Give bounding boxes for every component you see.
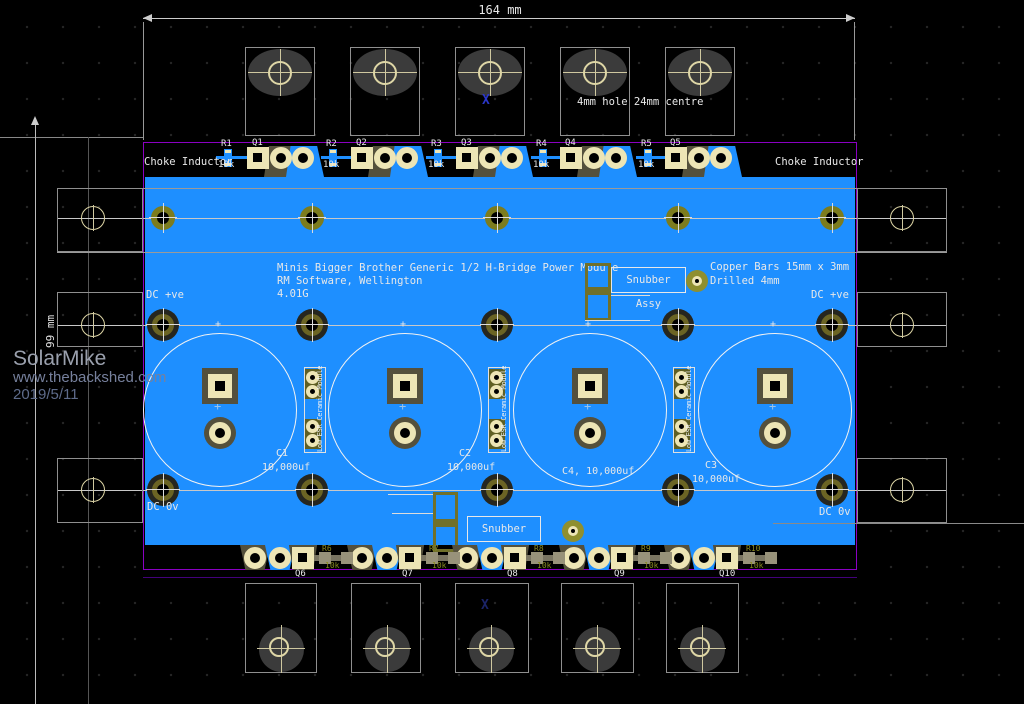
- resistor-value: 10k: [537, 561, 551, 570]
- snubber-label-box[interactable]: Snubber Assy: [611, 267, 686, 293]
- dim-arrow-up-icon: [31, 116, 39, 125]
- resistor-ref: R6: [322, 544, 332, 553]
- trace: [531, 156, 539, 159]
- dim-height-line: [35, 118, 36, 704]
- pad-hole: [462, 153, 471, 162]
- dim-ext-line: [143, 22, 144, 140]
- drill-cross-v: [93, 205, 94, 231]
- transistor-pad-square[interactable]: [247, 147, 269, 169]
- dim-ext-line: [854, 22, 855, 140]
- board-outline-offset: [143, 577, 857, 578]
- resistor-value: 10k: [323, 160, 339, 170]
- transistor-pad-round[interactable]: [583, 147, 605, 169]
- esr-module-label: Low ESR Ceramic Module: [500, 366, 508, 452]
- drill-circle[interactable]: [583, 61, 607, 85]
- capacitor-value: 10,000uf: [692, 474, 740, 485]
- capacitor-value-text: 10,000uf: [586, 466, 634, 477]
- x-marker: X: [481, 598, 489, 613]
- esr-module-label: Low ESR Ceramic Module: [316, 366, 324, 452]
- dc-positive-label-left: DC +ve: [146, 289, 184, 301]
- leader-line: [388, 494, 434, 495]
- pad-crosshair: [832, 473, 833, 507]
- pad-hole: [400, 381, 410, 391]
- transistor-pad-round[interactable]: [396, 147, 418, 169]
- esr-module-label: Low ESR Ceramic Module: [685, 366, 693, 452]
- watermark-name: SolarMike: [13, 347, 106, 371]
- transistor-pad-square[interactable]: [665, 147, 687, 169]
- capacitor-pad-round[interactable]: [394, 422, 416, 444]
- pad-hole: [585, 381, 595, 391]
- transistor-ref: Q4: [565, 138, 576, 148]
- trace: [442, 156, 457, 159]
- transistor-pad-round[interactable]: [292, 147, 314, 169]
- resistor-pad[interactable]: [660, 552, 672, 564]
- resistor-pad[interactable]: [448, 552, 460, 564]
- pad-crosshair: [163, 203, 164, 233]
- trace: [337, 156, 352, 159]
- board-version: 4.01G: [277, 288, 309, 300]
- pad-hole: [357, 153, 366, 162]
- resistor-pad[interactable]: [341, 552, 353, 564]
- transistor-ref: Q9: [614, 569, 625, 579]
- trace: [232, 156, 247, 159]
- resistor-value: 10k: [638, 160, 654, 170]
- pad-crosshair: [678, 473, 679, 507]
- transistor-ref: Q2: [356, 138, 367, 148]
- pad-hole: [215, 381, 225, 391]
- resistor-pad: [330, 150, 336, 153]
- transistor-pad-square[interactable]: [560, 147, 582, 169]
- resistor-pad: [225, 150, 231, 153]
- resistor-ref: R3: [431, 139, 442, 149]
- drill-circle[interactable]: [373, 61, 397, 85]
- snubber-component-bar: [588, 287, 608, 295]
- trace: [636, 156, 644, 159]
- drill-circle[interactable]: [269, 637, 289, 657]
- pad-crosshair: [312, 203, 313, 233]
- dim-arrow-right-icon: [846, 14, 855, 22]
- resistor-value: 10k: [533, 160, 549, 170]
- resistor-ref: R7: [429, 544, 439, 553]
- drill-circle[interactable]: [479, 637, 499, 657]
- dc-positive-label-right: DC +ve: [811, 289, 849, 301]
- transistor-pad-square[interactable]: [716, 547, 738, 569]
- drill-cross-v: [902, 205, 903, 231]
- leader-line: [611, 295, 650, 296]
- pad-hole: [405, 553, 414, 562]
- transistor-pad-square[interactable]: [504, 547, 526, 569]
- copper-bar-edge: [57, 252, 947, 253]
- transistor-pad-round[interactable]: [376, 547, 398, 569]
- watermark-date: 2019/5/11: [13, 386, 79, 403]
- leader-line: [392, 513, 434, 514]
- drill-circle[interactable]: [585, 637, 605, 657]
- pad-crosshair: [678, 308, 679, 342]
- transistor-ref: Q5: [670, 138, 681, 148]
- x-marker: X: [482, 93, 490, 108]
- transistor-pad-round[interactable]: [501, 147, 523, 169]
- capacitor-ref: C1: [276, 448, 288, 459]
- resistor-ref: R10: [746, 544, 760, 553]
- board-title: Minis Bigger Brother Generic 1/2 H-Bridg…: [277, 262, 618, 274]
- dim-arrow-left-icon: [143, 14, 152, 22]
- resistor-value: 10k: [749, 561, 763, 570]
- resistor-pad[interactable]: [553, 552, 565, 564]
- drill-circle[interactable]: [688, 61, 712, 85]
- dim-width-line: [143, 18, 855, 19]
- choke-inductor-label-right: Choke Inductor: [775, 156, 864, 168]
- capacitor-pad-round[interactable]: [209, 422, 231, 444]
- resistor-ref: R1: [221, 139, 232, 149]
- pad-hole: [695, 279, 699, 283]
- pad-hole: [617, 553, 626, 562]
- pad-hole: [298, 553, 307, 562]
- drill-cross-v: [93, 477, 94, 503]
- pad-hole: [571, 529, 575, 533]
- transistor-pad-round[interactable]: [351, 547, 373, 569]
- resistor-value: 10k: [325, 561, 339, 570]
- drill-circle[interactable]: [375, 637, 395, 657]
- board-subtitle: RM Software, Wellington: [277, 275, 422, 287]
- resistor-value: 10k: [432, 561, 446, 570]
- pad-hole: [770, 381, 780, 391]
- capacitor-pad-round[interactable]: [579, 422, 601, 444]
- resistor-pad: [645, 150, 651, 153]
- capacitor-ref: C4, 10,000uf: [562, 466, 634, 477]
- pad-crosshair: [312, 308, 313, 342]
- transistor-pad-round[interactable]: [481, 547, 503, 569]
- dc-zero-label-right: DC 0v: [819, 506, 851, 518]
- dc-zero-label-left: DC 0v: [147, 501, 179, 513]
- drill-cross-v: [902, 477, 903, 503]
- transistor-pad-square[interactable]: [292, 547, 314, 569]
- transistor-ref: Q7: [402, 569, 413, 579]
- transistor-pad-round[interactable]: [244, 547, 266, 569]
- resistor-ref: R8: [534, 544, 544, 553]
- choke-inductor-label-left: Choke Inductor: [144, 156, 233, 168]
- transistor-pad-round[interactable]: [479, 147, 501, 169]
- resistor-value: 10k: [644, 561, 658, 570]
- transistor-pad-round[interactable]: [374, 147, 396, 169]
- copper-bar-edge: [57, 188, 947, 189]
- drill-cross-v: [902, 312, 903, 338]
- resistor-pad: [540, 150, 546, 153]
- resistor-pad[interactable]: [765, 552, 777, 564]
- leader-line: [585, 320, 650, 321]
- dim-ext-line: [0, 137, 143, 138]
- snubber-component-bar: [436, 519, 455, 527]
- watermark-url: www.thebackshed.com: [13, 369, 166, 386]
- transistor-ref: Q3: [461, 138, 472, 148]
- transistor-pad-round[interactable]: [269, 547, 291, 569]
- resistor-ref: R9: [641, 544, 651, 553]
- transistor-pad-square[interactable]: [611, 547, 633, 569]
- transistor-pad-round[interactable]: [693, 547, 715, 569]
- pad-hole: [671, 153, 680, 162]
- snubber-label-box[interactable]: Snubber Assy: [467, 516, 541, 542]
- copper-bars-note-1: Copper Bars 15mm x 3mm: [710, 261, 849, 273]
- transistor-ref: Q10: [719, 569, 735, 579]
- trace: [321, 156, 329, 159]
- capacitor-value: 10,000uf: [447, 462, 495, 473]
- transistor-pad-square[interactable]: [399, 547, 421, 569]
- capacitor-ref: C3: [705, 460, 717, 471]
- hole-note-label: 4mm hole 24mm centre: [577, 96, 703, 108]
- capacitor-ref-text: C4,: [562, 466, 580, 477]
- pad-hole: [566, 153, 575, 162]
- resistor-pad: [435, 150, 441, 153]
- pad-crosshair: [497, 473, 498, 507]
- copper-bars-note-2: Drilled 4mm: [710, 275, 780, 287]
- dim-height-label[interactable]: 99 mm: [44, 315, 57, 348]
- transistor-ref: Q6: [295, 569, 306, 579]
- drill-circle[interactable]: [690, 637, 710, 657]
- pad-crosshair: [832, 203, 833, 233]
- transistor-pad-round[interactable]: [588, 547, 610, 569]
- transistor-pad-round[interactable]: [710, 147, 732, 169]
- pad-crosshair: [497, 308, 498, 342]
- transistor-ref: Q1: [252, 138, 263, 148]
- drill-circle[interactable]: [478, 61, 502, 85]
- pad-hole: [510, 553, 519, 562]
- pad-crosshair: [678, 203, 679, 233]
- transistor-pad-round[interactable]: [270, 147, 292, 169]
- capacitor-value: 10,000uf: [262, 462, 310, 473]
- pad-hole: [722, 553, 731, 562]
- resistor-ref: R5: [641, 139, 652, 149]
- pcb-cad-canvas: { "dimensions": { "horizontal": "164 mm"…: [0, 0, 1024, 704]
- transistor-pad-round[interactable]: [605, 147, 627, 169]
- transistor-pad-round[interactable]: [563, 547, 585, 569]
- drill-cross-v: [93, 312, 94, 338]
- pad-crosshair: [497, 203, 498, 233]
- trace: [426, 156, 434, 159]
- resistor-ref: R2: [326, 139, 337, 149]
- transistor-pad-square[interactable]: [351, 147, 373, 169]
- resistor-value: 10k: [428, 160, 444, 170]
- transistor-ref: Q8: [507, 569, 518, 579]
- drill-circle[interactable]: [268, 61, 292, 85]
- pad-crosshair: [163, 308, 164, 342]
- pad-crosshair: [832, 308, 833, 342]
- copper-bar-edge: [773, 523, 1024, 524]
- transistor-pad-round[interactable]: [688, 147, 710, 169]
- dim-width-label[interactable]: 164 mm: [455, 3, 545, 17]
- resistor-ref: R4: [536, 139, 547, 149]
- transistor-pad-square[interactable]: [456, 147, 478, 169]
- pad-crosshair: [312, 473, 313, 507]
- capacitor-pad-round[interactable]: [764, 422, 786, 444]
- pad-hole: [253, 153, 262, 162]
- capacitor-ref: C2: [459, 448, 471, 459]
